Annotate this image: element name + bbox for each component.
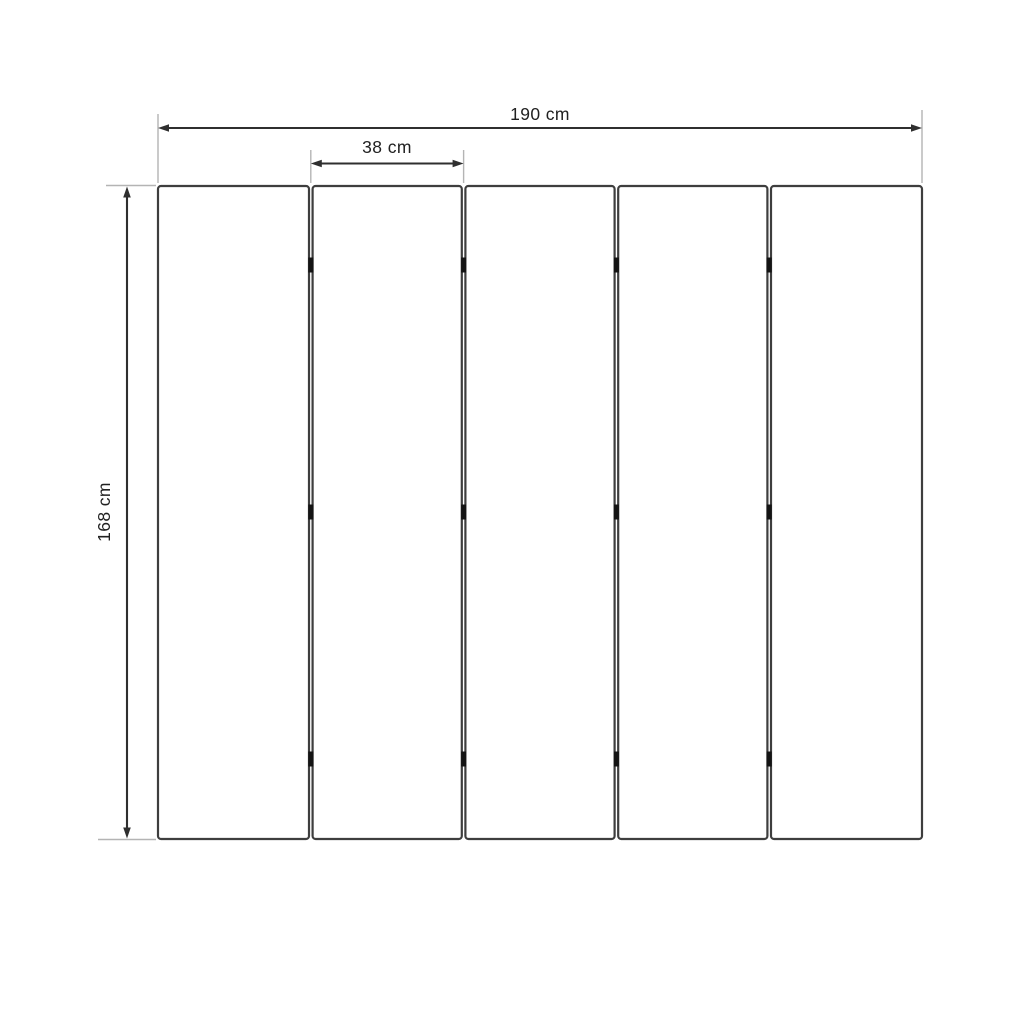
dimension-panel-height: 168 cm xyxy=(94,187,131,839)
hinge-icon xyxy=(614,752,619,767)
dimension-total-width: 190 cm xyxy=(158,104,922,132)
arrow-right-icon xyxy=(453,160,464,168)
arrow-left-icon xyxy=(311,160,322,168)
panel-5 xyxy=(771,186,922,839)
arrow-down-icon xyxy=(123,828,131,839)
panel-2 xyxy=(313,186,462,839)
hinge-icon xyxy=(308,752,313,767)
panel-1 xyxy=(158,186,309,839)
hinge-icon xyxy=(308,505,313,520)
diagram-canvas: 190 cm 38 cm 168 cm xyxy=(0,0,1024,1024)
hinge-icon xyxy=(614,505,619,520)
hinge-icon xyxy=(461,505,466,520)
arrow-left-icon xyxy=(158,124,169,132)
panel-3 xyxy=(465,186,614,839)
hinge-icon xyxy=(461,752,466,767)
panels xyxy=(158,186,922,839)
hinge-icon xyxy=(461,258,466,273)
hinge-icon xyxy=(767,258,772,273)
hinge-icon xyxy=(767,505,772,520)
dimension-label-total-width: 190 cm xyxy=(510,104,570,124)
dimension-label-panel-height: 168 cm xyxy=(94,482,114,542)
hinge-icon xyxy=(767,752,772,767)
panel-4 xyxy=(618,186,767,839)
hinge-icon xyxy=(614,258,619,273)
hinge-icon xyxy=(308,258,313,273)
arrow-up-icon xyxy=(123,187,131,198)
arrow-right-icon xyxy=(911,124,922,132)
dimension-panel-width: 38 cm xyxy=(311,137,464,167)
dimension-label-panel-width: 38 cm xyxy=(362,137,412,157)
folding-screen-diagram: 190 cm 38 cm 168 cm xyxy=(0,0,1024,1024)
